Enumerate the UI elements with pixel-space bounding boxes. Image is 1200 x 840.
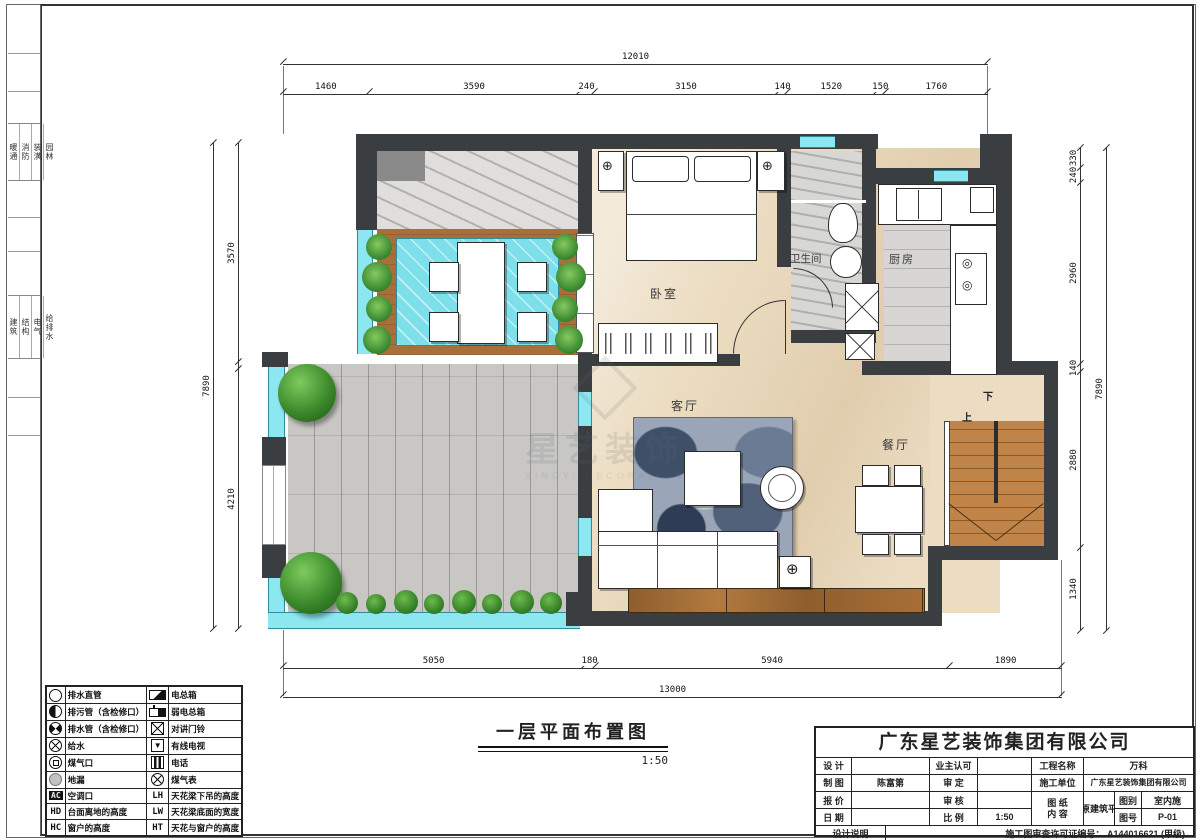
legend-label: 排水管（含检修口）	[65, 720, 147, 737]
legend-sym-cell	[46, 820, 65, 836]
toilet	[828, 203, 858, 243]
shrub	[510, 590, 534, 614]
shrub	[424, 594, 444, 614]
window	[578, 392, 592, 426]
tb-value: 一层原建筑平面图	[1084, 792, 1115, 825]
wall-segment	[578, 611, 942, 626]
legend-sym-cell	[147, 704, 169, 721]
plant	[552, 296, 578, 322]
titleblock-row: 设计说明 施工图审查许可证编号： A144016621 (甲级)	[816, 826, 1193, 840]
strip-label: 暖通	[8, 143, 19, 161]
dim-text: 3590	[462, 82, 486, 92]
legend-sym-cell	[46, 737, 65, 754]
legend-label: 地漏	[65, 771, 147, 788]
tb-stack: 1:50	[978, 792, 1032, 825]
pillow	[694, 156, 751, 182]
tree	[280, 552, 342, 614]
tb-value	[852, 792, 929, 809]
shrub	[540, 592, 562, 614]
dim-right-total: 7890	[1106, 148, 1107, 630]
outdoor-stool	[517, 262, 547, 292]
tb-label: 业主认可	[930, 758, 978, 774]
dim-text: 1340	[1069, 578, 1079, 600]
tb-label: 制 图	[816, 775, 852, 791]
door-leaf	[785, 300, 786, 354]
wall-segment	[928, 546, 1058, 560]
legend-label: 弱电总箱	[169, 704, 243, 721]
lamp-icon: ⊕	[602, 158, 613, 174]
dim-text: 12010	[621, 52, 650, 62]
titleblock-row: 设 计 业主认可 工程名称 万科	[816, 758, 1193, 775]
dim-text: 2880	[1069, 449, 1079, 471]
tb-value: 室内施	[1142, 792, 1193, 808]
window	[934, 170, 968, 182]
tb-label: 设计说明	[816, 826, 886, 840]
room-label-bedroom: 卧室	[650, 285, 678, 302]
tb-label: 日 期	[816, 809, 851, 825]
tb-label: 报 价	[816, 792, 851, 809]
shrub	[482, 594, 502, 614]
tb-label: 图 纸 内 容	[1032, 792, 1084, 825]
gas-meter-icon	[151, 773, 164, 786]
wall-segment	[262, 352, 288, 367]
sofa	[598, 531, 778, 589]
window	[800, 136, 835, 148]
coffee-table	[684, 451, 741, 506]
outdoor-stool	[429, 312, 459, 342]
legend-sym-cell	[46, 686, 65, 704]
legend-row: 煤气口 电话	[46, 754, 242, 771]
tb-label-line: 内 容	[1047, 809, 1068, 820]
wall-segment	[997, 168, 1012, 375]
permit-label: 施工图审查许可证编号：	[1005, 829, 1104, 839]
legend-table: 排水直管 电总箱 排污管（含检修口） 弱电总箱 排水管（含检修口） 对讲门铃 给…	[45, 685, 243, 837]
dim-top-segments: 1460 3590 240 3150 140 1520 150 1760	[283, 94, 988, 95]
side-table-inner	[768, 474, 796, 502]
ht-abbrev-icon	[152, 823, 163, 833]
tb-label: 审 核	[930, 792, 977, 809]
drain-riser-icon	[49, 689, 62, 702]
tb-label: 设 计	[816, 758, 852, 774]
window	[262, 465, 286, 545]
wall-segment	[566, 592, 584, 626]
tb-value: 万科	[1084, 758, 1193, 774]
legend-label: 天花与窗户的高度	[169, 820, 243, 836]
dim-text: 2960	[1069, 262, 1079, 284]
cable-tv-icon	[151, 739, 164, 752]
gas-port-icon	[49, 756, 62, 769]
room-label-living: 客厅	[671, 397, 699, 414]
shower-glass	[791, 200, 866, 203]
strip-divider	[8, 251, 40, 252]
burner-icon: ◎	[962, 256, 972, 270]
strip-label: 建筑	[8, 318, 19, 336]
title-underline	[478, 749, 668, 752]
blanket-line	[626, 214, 757, 215]
legend-label: 电总箱	[169, 686, 243, 704]
dim-text: 3570	[227, 242, 237, 264]
burner-icon: ◎	[962, 278, 972, 292]
lh-abbrev-icon	[152, 791, 163, 801]
kitchen-appliance	[970, 187, 994, 213]
drawing-title: 一层平面布置图 1:50	[478, 718, 668, 767]
strip-cell: 给排水	[44, 296, 55, 358]
dim-text: 7890	[1095, 378, 1105, 400]
strip-divider	[8, 397, 40, 398]
drawing-title-text: 一层平面布置图	[478, 718, 668, 748]
legend-label: 天花梁下吊的高度	[169, 788, 243, 804]
dim-text: 4210	[227, 488, 237, 510]
title-block: 广东星艺装饰集团有限公司 设 计 业主认可 工程名称 万科 制 图 陈富第 审 …	[814, 726, 1195, 837]
dining-table	[855, 486, 923, 533]
terrace-mat	[377, 151, 425, 181]
tb-stack: 报 价 日 期	[816, 792, 852, 825]
discipline-strip: 暖通 消防 装潢 园林 建筑 结构 电气 给排水	[8, 5, 41, 835]
dim-text: 1460	[314, 82, 338, 92]
strip-divider	[8, 435, 40, 436]
dim-text: 13000	[658, 685, 687, 695]
telephone-icon	[151, 756, 164, 769]
legend-row: 排水管（含检修口） 对讲门铃	[46, 720, 242, 737]
wash-basin	[830, 246, 862, 278]
drawing-scale: 1:50	[478, 754, 668, 767]
dining-chair	[894, 534, 921, 555]
strip-cell: 电气	[32, 296, 44, 358]
legend-sym-cell	[46, 720, 65, 737]
hd-abbrev-icon	[50, 807, 61, 817]
plant	[366, 234, 392, 260]
tb-value	[978, 792, 1031, 809]
outdoor-table	[457, 242, 505, 344]
sofa-back-line	[598, 545, 778, 546]
legend-label: 排水直管	[65, 686, 147, 704]
tb-value: 广东星艺装饰集团有限公司	[1084, 775, 1193, 791]
tb-label: 比 例	[930, 809, 977, 825]
ac-vent-icon	[49, 791, 63, 801]
permit-value: A144016621 (甲级)	[1107, 829, 1185, 839]
wall-segment	[356, 134, 590, 151]
tv-cabinet	[628, 588, 925, 613]
tb-value	[852, 758, 930, 774]
legend-label: 电话	[169, 754, 243, 771]
strip-divider	[8, 217, 40, 218]
dim-left-segments: 3570 4210	[238, 143, 239, 628]
plant	[556, 262, 586, 292]
legend-sym-cell	[147, 720, 169, 737]
dining-chair	[862, 465, 889, 486]
dim-text: 5050	[422, 656, 446, 666]
weak-power-box-icon	[149, 708, 166, 717]
dining-chair	[862, 534, 889, 555]
lamp-icon: ⊕	[762, 158, 773, 174]
legend-label: 窗户的高度	[65, 820, 147, 836]
dim-text: 1520	[819, 82, 843, 92]
legend-label: 煤气口	[65, 754, 147, 771]
strip-label: 电气	[32, 318, 43, 336]
shrub	[394, 590, 418, 614]
tb-mini-row: 图别 室内施	[1115, 792, 1193, 809]
sewage-pipe-icon	[49, 705, 62, 718]
duct-shaft	[845, 333, 875, 360]
tb-value: 陈富第	[852, 775, 930, 791]
strip-cell: 建筑	[8, 296, 20, 358]
tb-value: 1:50	[978, 809, 1031, 825]
dim-right-segments: 330 240 2960 140 2880 1340	[1080, 148, 1081, 630]
plant	[555, 326, 583, 354]
strip-cell: 装潢	[32, 124, 44, 180]
strip-cell: 消防	[20, 124, 32, 180]
room-label-bathroom: 卫生间	[790, 251, 822, 266]
legend-row: 排污管（含检修口） 弱电总箱	[46, 704, 242, 721]
legend-row: 地漏 煤气表	[46, 771, 242, 788]
drain-pipe-icon	[49, 722, 62, 735]
plant	[362, 262, 392, 292]
tb-label-line: 图 纸	[1047, 798, 1068, 809]
legend-sym-cell	[46, 804, 65, 820]
tb-mini-row: 图号 P-01	[1115, 809, 1193, 825]
legend-sym-cell	[147, 754, 169, 771]
duct-shaft	[845, 283, 879, 331]
intercom-doorbell-icon	[151, 722, 164, 735]
dim-bottom-segments: 5050 180 5940 1890	[283, 668, 1062, 669]
strip-label: 结构	[20, 318, 31, 336]
legend-label: 对讲门铃	[169, 720, 243, 737]
tb-value: P-01	[1142, 809, 1193, 825]
dim-text: 1760	[925, 82, 949, 92]
strip-label: 给排水	[44, 314, 55, 341]
power-box-icon	[149, 690, 166, 700]
strip-divider	[8, 91, 40, 92]
dim-text: 5940	[760, 656, 784, 666]
tb-stack	[852, 792, 930, 825]
legend-label: 台面离地的高度	[65, 804, 147, 820]
wardrobe	[598, 323, 718, 363]
room-label-dining: 餐厅	[882, 436, 910, 453]
extension-line	[987, 66, 988, 134]
tb-label: 图号	[1115, 809, 1142, 825]
strip-divider	[8, 53, 40, 54]
outdoor-stool	[517, 312, 547, 342]
legend-label: 给水	[65, 737, 147, 754]
kitchen-sink	[896, 188, 942, 221]
legend-label: 煤气表	[169, 771, 243, 788]
window	[578, 518, 592, 556]
shrub	[452, 590, 476, 614]
legend-label: 有线电视	[169, 737, 243, 754]
wall-segment	[1044, 361, 1058, 560]
legend-sym-cell	[46, 771, 65, 788]
legend-row: 窗户的高度 天花与窗户的高度	[46, 820, 242, 836]
dim-text: 240	[1069, 167, 1079, 183]
legend-sym-cell	[46, 754, 65, 771]
legend-row: 台面离地的高度 天花梁底面的宽度	[46, 804, 242, 820]
dim-text: 3150	[674, 82, 698, 92]
legend-sym-cell	[147, 737, 169, 754]
legend-sym-cell	[147, 820, 169, 836]
tb-value	[852, 809, 929, 825]
legend-row: 排水直管 电总箱	[46, 686, 242, 704]
plant	[552, 234, 578, 260]
strip-cell: 暖通	[8, 124, 20, 180]
strip-label: 装潢	[32, 143, 43, 161]
strip-label: 园林	[44, 143, 55, 161]
tb-mini-grid: 图别 室内施 图号 P-01	[1115, 792, 1193, 825]
titleblock-row: 报 价 日 期 审 核 比 例 1:50 图 纸 内 容 一层原建筑平面图	[816, 792, 1193, 826]
legend-label: 天花梁底面的宽度	[169, 804, 243, 820]
dim-text: 7890	[202, 375, 212, 397]
stair-stringer	[994, 421, 998, 503]
strip-cell: 园林	[44, 124, 55, 180]
plant	[366, 296, 392, 322]
tb-label: 审 定	[930, 775, 978, 791]
tb-value	[978, 775, 1032, 791]
strip-cell: 结构	[20, 296, 32, 358]
legend-sym-cell	[147, 686, 169, 704]
floor-drain-icon	[49, 773, 62, 786]
strip-group-1: 暖通 消防 装潢 园林	[8, 123, 40, 181]
legend-sym-cell	[46, 788, 65, 804]
titleblock-row: 制 图 陈富第 审 定 施工单位 广东星艺装饰集团有限公司	[816, 775, 1193, 792]
dim-bottom-total: 13000	[283, 697, 1062, 698]
tb-label: 施工单位	[1032, 775, 1084, 791]
shrub	[366, 594, 386, 614]
sink-divider	[918, 190, 919, 219]
tb-stack: 审 核 比 例	[930, 792, 978, 825]
dim-text: 330	[1069, 150, 1079, 166]
shrub	[336, 592, 358, 614]
legend-sym-cell	[147, 788, 169, 804]
strip-label: 消防	[20, 143, 31, 161]
plant	[363, 326, 391, 354]
wall-segment	[356, 134, 377, 230]
extension-line	[283, 66, 284, 134]
stair-up-label: 上	[962, 409, 972, 424]
dim-left-total: 7890	[213, 143, 214, 628]
tb-label: 图别	[1115, 792, 1142, 808]
legend-label: 空调口	[65, 788, 147, 804]
dim-top-total: 12010	[283, 64, 988, 65]
legend-label: 排污管（含检修口）	[65, 704, 147, 721]
dining-chair	[894, 465, 921, 486]
company-name: 广东星艺装饰集团有限公司	[816, 728, 1193, 758]
strip-group-2: 建筑 结构 电气 给排水	[8, 295, 40, 359]
lw-abbrev-icon	[152, 807, 163, 817]
legend-sym-cell	[46, 704, 65, 721]
outdoor-stool	[429, 262, 459, 292]
patio-edge-water	[268, 612, 580, 629]
tree	[278, 364, 336, 422]
legend-sym-cell	[147, 771, 169, 788]
legend-sym-cell	[147, 804, 169, 820]
drawing-sheet: 暖通 消防 装潢 园林 建筑 结构 电气 给排水	[0, 0, 1200, 840]
tb-value	[978, 758, 1032, 774]
extension-line	[1061, 560, 1062, 696]
tb-label: 工程名称	[1032, 758, 1084, 774]
wall-segment	[262, 437, 286, 465]
kitchen-floor	[884, 225, 954, 363]
legend-row: 空调口 天花梁下吊的高度	[46, 788, 242, 804]
legend-row: 给水 有线电视	[46, 737, 242, 754]
pillow	[632, 156, 689, 182]
hc-abbrev-icon	[50, 823, 61, 833]
dim-text: 1890	[994, 656, 1018, 666]
stair-down-label: 下	[983, 388, 993, 403]
water-supply-icon	[49, 739, 62, 752]
outlet-icon: ⊕	[786, 560, 799, 578]
room-label-kitchen: 厨房	[889, 251, 915, 267]
